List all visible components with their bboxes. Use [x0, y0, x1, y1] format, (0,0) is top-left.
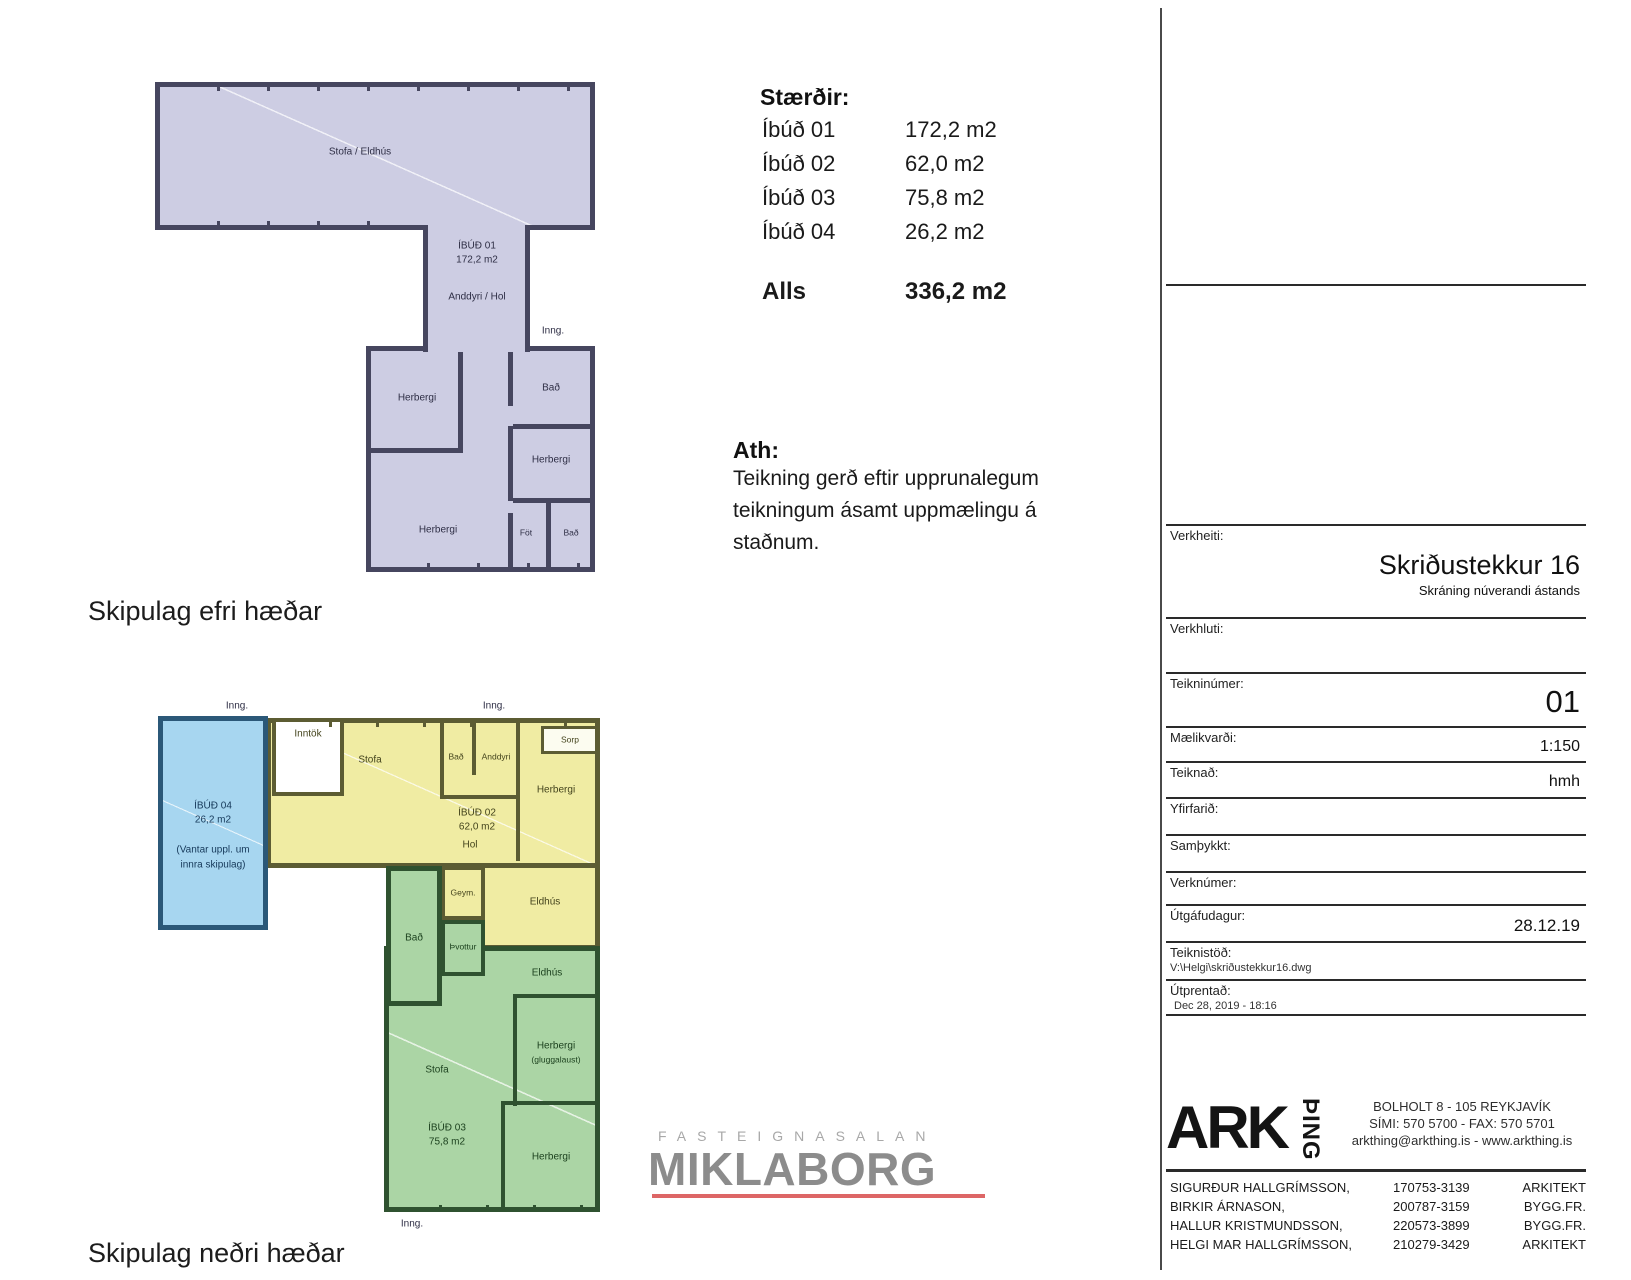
- field-verkheiti-label: Verkheiti:: [1170, 528, 1223, 543]
- field-yfirfarid-label: Yfirfarið:: [1170, 801, 1218, 816]
- titleblock-line: [1166, 941, 1586, 943]
- room-eldhus-green-label: Eldhús: [532, 966, 563, 980]
- arkthing-address-2: SÍMI: 570 5700 - FAX: 570 5701: [1332, 1115, 1592, 1132]
- wall-segment: [513, 994, 595, 998]
- arkthing-address-1: BOLHOLT 8 - 105 REYKJAVÍK: [1332, 1098, 1592, 1115]
- field-teiknistod-label: Teiknistöð:: [1170, 945, 1231, 960]
- room-bad1-label: Bað: [542, 381, 560, 395]
- titleblock-line: [1166, 904, 1586, 906]
- miklaborg-logo: MIKLABORG: [648, 1142, 936, 1196]
- room-hol-label: Hol: [462, 838, 477, 852]
- room-stofa-yellow-label: Stofa: [358, 753, 381, 767]
- window-ticks: [170, 221, 415, 228]
- staff-role: BYGG.FR.: [1496, 1199, 1586, 1214]
- titleblock-line: [1166, 1014, 1586, 1016]
- wall-segment: [440, 795, 520, 799]
- window-ticks: [285, 720, 585, 727]
- room-stofa-eldhus-label: Stofa / Eldhús: [329, 145, 391, 159]
- titleblock-line: [1166, 834, 1586, 836]
- wall-segment: [513, 424, 590, 429]
- sizes-total-value: 336,2 m2: [905, 278, 1006, 306]
- room-eldhus-yellow-label: Eldhús: [530, 895, 561, 909]
- staff-id: 220573-3899: [1393, 1218, 1470, 1233]
- staff-id: 170753-3139: [1393, 1180, 1470, 1195]
- field-utprentad-label: Útprentað:: [1170, 983, 1231, 998]
- wall-segment: [501, 1101, 595, 1105]
- staff-role: ARKITEKT: [1496, 1237, 1586, 1252]
- room-herbergi3-label: Herbergi: [419, 523, 457, 537]
- drawing-number: 01: [1186, 684, 1580, 720]
- staff-name: SIGURÐUR HALLGRÍMSSON,: [1170, 1180, 1350, 1195]
- room-fot-label: Föt: [520, 527, 532, 538]
- arkthing-logo: ARK: [1166, 1098, 1287, 1158]
- printed-value: Dec 28, 2019 - 18:16: [1174, 1000, 1277, 1012]
- wall-segment: [371, 448, 463, 453]
- arkthing-address-3: arkthing@arkthing.is - www.arkthing.is: [1332, 1132, 1592, 1149]
- room-herbergi-green-label: Herbergi: [532, 1150, 570, 1164]
- entrance-label: Inng.: [401, 1217, 423, 1231]
- issue-date-value: 28.12.19: [1186, 916, 1580, 936]
- lower-plan-title: Skipulag neðri hæðar: [88, 1238, 345, 1269]
- staff-role: ARKITEKT: [1496, 1180, 1586, 1195]
- titleblock-line: [1166, 672, 1586, 674]
- entrance-label: Inng.: [542, 324, 564, 338]
- note-line: teikningum ásamt uppmælingu á: [733, 499, 1037, 523]
- titleblock-line: [1166, 797, 1586, 799]
- titleblock-line: [1166, 1169, 1586, 1172]
- room-stofa-green-label: Stofa: [425, 1063, 448, 1077]
- sizes-heading: Stærðir:: [760, 84, 849, 111]
- room-herbergi-gluggalaust-label: Herbergi: [537, 1039, 575, 1053]
- window-ticks: [395, 1205, 585, 1212]
- room-herbergi-yellow-label: Herbergi: [537, 783, 575, 797]
- titleblock-line: [1166, 979, 1586, 981]
- scale-value: 1:150: [1186, 738, 1580, 756]
- miklaborg-underline: [652, 1194, 985, 1198]
- room-anddyri-label: Anddyri: [482, 751, 511, 762]
- size-row-label: Íbúð 01: [762, 117, 835, 143]
- room-bad-green-label: Bað: [405, 931, 423, 945]
- note-line: staðnum.: [733, 531, 819, 555]
- unit-01-label: ÍBÚÐ 01: [458, 239, 496, 253]
- arkthing-logo-sub: ÞING: [1296, 1098, 1324, 1162]
- wall-segment: [546, 503, 551, 567]
- window-ticks: [380, 563, 580, 570]
- wall-segment: [458, 351, 463, 451]
- titleblock-line: [1166, 761, 1586, 763]
- wall-segment: [513, 994, 517, 1106]
- unit-04-note: innra skipulag): [180, 858, 245, 872]
- window-ticks: [170, 84, 580, 91]
- room-thvottur-label: Þvottur: [450, 941, 477, 952]
- wall-segment: [508, 351, 513, 406]
- drawn-by-value: hmh: [1186, 773, 1580, 791]
- project-subtitle: Skráning núverandi ástands: [1186, 583, 1580, 598]
- field-verknumer-label: Verknúmer:: [1170, 875, 1236, 890]
- staff-id: 210279-3429: [1393, 1237, 1470, 1252]
- unit-02-label: ÍBÚÐ 02: [458, 806, 496, 820]
- titleblock-divider: [1160, 8, 1162, 1270]
- size-row-label: Íbúð 04: [762, 219, 835, 245]
- wall-segment: [513, 498, 590, 503]
- field-verkhluti-label: Verkhluti:: [1170, 621, 1223, 636]
- room-bad2-label: Bað: [563, 527, 578, 538]
- unit-02-area: 62,0 m2: [459, 820, 495, 834]
- wall-segment: [508, 426, 513, 501]
- staff-role: BYGG.FR.: [1496, 1218, 1586, 1233]
- room-inntok-label: Inntök: [294, 727, 321, 741]
- size-row-value: 172,2 m2: [905, 117, 997, 143]
- project-name: Skriðustekkur 16: [1186, 550, 1580, 581]
- room-anddyri-hol-label: Anddyri / Hol: [448, 290, 505, 304]
- entrance-label: Inng.: [483, 699, 505, 713]
- note-line: Teikning gerð eftir upprunalegum: [733, 467, 1039, 491]
- titleblock-line: [1166, 524, 1586, 526]
- size-row-label: Íbúð 03: [762, 185, 835, 211]
- unit-04-label: ÍBÚÐ 04: [194, 799, 232, 813]
- staff-id: 200787-3159: [1393, 1199, 1470, 1214]
- staff-name: BIRKIR ÁRNASON,: [1170, 1199, 1285, 1214]
- room-bad-yellow-label: Bað: [448, 751, 463, 762]
- room-herbergi2-label: Herbergi: [532, 453, 570, 467]
- staff-name: HELGI MAR HALLGRÍMSSON,: [1170, 1237, 1352, 1252]
- wall-segment: [508, 513, 513, 567]
- wall-segment: [472, 721, 476, 775]
- titleblock-line: [1166, 617, 1586, 619]
- room-geym-label: Geym.: [450, 887, 475, 898]
- unit-03-area: 75,8 m2: [429, 1135, 465, 1149]
- drawing-sheet: Stofa / Eldhús ÍBÚÐ 01 172,2 m2 Anddyri …: [0, 0, 1631, 1280]
- upper-plan-title: Skipulag efri hæðar: [88, 596, 322, 627]
- titleblock-line: [1166, 284, 1586, 286]
- size-row-value: 75,8 m2: [905, 185, 985, 211]
- room-herbergi1-label: Herbergi: [398, 391, 436, 405]
- note-heading: Ath:: [733, 437, 779, 464]
- size-row-value: 62,0 m2: [905, 151, 985, 177]
- unit-04-note: (Vantar uppl. um: [176, 843, 249, 857]
- sizes-total-label: Alls: [762, 278, 806, 306]
- wall-segment: [501, 1101, 505, 1207]
- unit-03-label: ÍBÚÐ 03: [428, 1121, 466, 1135]
- entrance-label: Inng.: [226, 699, 248, 713]
- staff-name: HALLUR KRISTMUNDSSON,: [1170, 1218, 1343, 1233]
- room-herbergi-gluggalaust-sub: (gluggalaust): [531, 1054, 580, 1065]
- size-row-label: Íbúð 02: [762, 151, 835, 177]
- file-path-value: V:\Helgi\skriðustekkur16.dwg: [1170, 962, 1311, 974]
- unit-01-area: 172,2 m2: [456, 253, 498, 267]
- unit-04-area: 26,2 m2: [195, 813, 231, 827]
- wall-segment: [516, 721, 520, 861]
- room-sorp-label: Sorp: [561, 734, 579, 745]
- field-samthykkt-label: Samþykkt:: [1170, 838, 1231, 853]
- titleblock-line: [1166, 726, 1586, 728]
- size-row-value: 26,2 m2: [905, 219, 985, 245]
- titleblock-line: [1166, 871, 1586, 873]
- wall-segment: [440, 721, 444, 797]
